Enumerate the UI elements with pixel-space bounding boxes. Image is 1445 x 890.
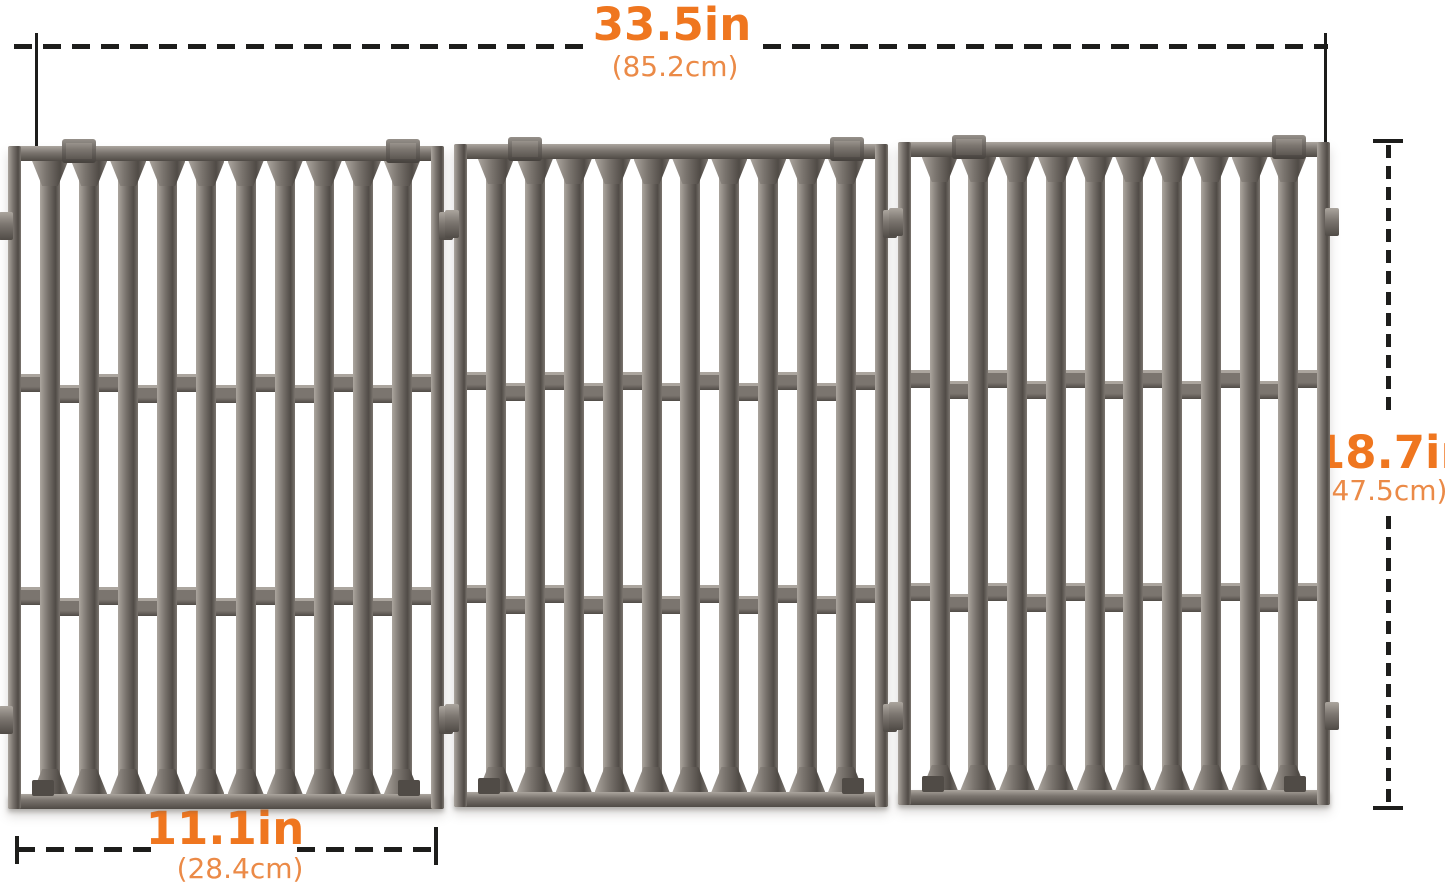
grate-bar-cap-top bbox=[478, 159, 514, 184]
panel-width-tick-right bbox=[434, 827, 438, 865]
grate-bar-cap-bottom bbox=[110, 769, 146, 794]
panel-width-inches-label: 11.1in bbox=[125, 806, 325, 851]
grate-bar-cap-top bbox=[1154, 157, 1190, 182]
grate-bar bbox=[1046, 157, 1066, 790]
bottom-lug bbox=[922, 776, 944, 792]
top-lug bbox=[952, 135, 986, 159]
grate-bar bbox=[1201, 157, 1221, 790]
frame-rail-bottom bbox=[8, 794, 444, 809]
grate-bar-cap-bottom bbox=[71, 769, 107, 794]
grate-bar-cap-bottom bbox=[960, 765, 996, 790]
grate-panel bbox=[898, 142, 1330, 805]
grate-bar-cap-bottom bbox=[672, 767, 708, 792]
grate-bar-cap-bottom bbox=[750, 767, 786, 792]
side-tab-right bbox=[1325, 208, 1339, 236]
grate-bar bbox=[680, 159, 700, 792]
grate-bar bbox=[758, 159, 778, 792]
grate-bar-cap-bottom bbox=[228, 769, 264, 794]
top-lug bbox=[386, 139, 420, 163]
side-tab-left bbox=[889, 208, 903, 236]
grate-bar-cap-bottom bbox=[267, 769, 303, 794]
grate-bar-cap-top bbox=[634, 159, 670, 184]
grate-bar-cap-top bbox=[306, 161, 342, 186]
side-tab-left bbox=[889, 702, 903, 730]
grate-bar-cap-bottom bbox=[517, 767, 553, 792]
grate-bar-cap-top bbox=[1038, 157, 1074, 182]
width-cm-label: (85.2cm) bbox=[575, 53, 775, 81]
depth-dimension-line bbox=[1386, 516, 1391, 806]
grate-bar bbox=[314, 161, 334, 794]
grate-bar bbox=[1162, 157, 1182, 790]
grate-bar bbox=[40, 161, 60, 794]
grate-bar-cap-top bbox=[1115, 157, 1151, 182]
grate-bar-cap-bottom bbox=[634, 767, 670, 792]
grate-bar-cap-bottom bbox=[789, 767, 825, 792]
grate-bar-cap-bottom bbox=[595, 767, 631, 792]
grate-bar bbox=[642, 159, 662, 792]
depth-cm-label: (47.5cm) bbox=[1314, 477, 1445, 505]
grate-bar bbox=[1278, 157, 1298, 790]
grate-bar-cap-top bbox=[110, 161, 146, 186]
bottom-lug bbox=[1284, 776, 1306, 792]
grate-bar-cap-top bbox=[32, 161, 68, 186]
grate-bar-cap-bottom bbox=[306, 769, 342, 794]
top-lug bbox=[1272, 135, 1306, 159]
side-tab-right bbox=[1325, 702, 1339, 730]
grate-bar bbox=[392, 161, 412, 794]
grate-bar-cap-top bbox=[999, 157, 1035, 182]
frame-rail-bottom bbox=[898, 790, 1330, 805]
grate-bar-cap-bottom bbox=[556, 767, 592, 792]
grate-bar-cap-bottom bbox=[1077, 765, 1113, 790]
depth-tick-bottom bbox=[1373, 806, 1403, 810]
grate-bar-cap-bottom bbox=[1038, 765, 1074, 790]
side-tab-left bbox=[445, 210, 459, 238]
grate-bar-cap-bottom bbox=[1193, 765, 1229, 790]
grate-bar-cap-top bbox=[556, 159, 592, 184]
grate-bar bbox=[353, 161, 373, 794]
top-lug bbox=[508, 137, 542, 161]
grate-bar-cap-top bbox=[595, 159, 631, 184]
grate-bar bbox=[79, 161, 99, 794]
width-dimension-line bbox=[14, 44, 587, 49]
grate-bar-cap-top bbox=[828, 159, 864, 184]
grate-bar-cap-top bbox=[711, 159, 747, 184]
grate-bar-cap-top bbox=[1270, 157, 1306, 182]
panel-width-cm-label: (28.4cm) bbox=[140, 855, 340, 883]
diagram-canvas: 33.5in (85.2cm) 18.7in (47.5cm) 11.1in (… bbox=[0, 0, 1445, 890]
grate-bar bbox=[797, 159, 817, 792]
grate-bar-cap-top bbox=[750, 159, 786, 184]
grate-bar bbox=[1085, 157, 1105, 790]
grate-bar-cap-top bbox=[345, 161, 381, 186]
grate-bar bbox=[930, 157, 950, 790]
grate-bar-cap-top bbox=[228, 161, 264, 186]
grate-bar bbox=[836, 159, 856, 792]
grate-bar bbox=[1123, 157, 1143, 790]
grate-bar-cap-top bbox=[517, 159, 553, 184]
grate-panel bbox=[8, 146, 444, 809]
grate-bar bbox=[719, 159, 739, 792]
grate-bar bbox=[157, 161, 177, 794]
grate-bar-cap-top bbox=[922, 157, 958, 182]
extension-line-left bbox=[35, 33, 38, 147]
grate-bar-cap-top bbox=[188, 161, 224, 186]
grate-bar bbox=[968, 157, 988, 790]
grate-bar-cap-top bbox=[71, 161, 107, 186]
grate-bar bbox=[118, 161, 138, 794]
grate-bar-cap-bottom bbox=[711, 767, 747, 792]
bottom-lug bbox=[398, 780, 420, 796]
grate-bar-cap-bottom bbox=[345, 769, 381, 794]
grate-bar-cap-top bbox=[672, 159, 708, 184]
width-dimension-line bbox=[763, 44, 1328, 49]
bottom-lug bbox=[32, 780, 54, 796]
grate-bar bbox=[564, 159, 584, 792]
grate-bar-cap-bottom bbox=[1115, 765, 1151, 790]
grate-bar-cap-top bbox=[960, 157, 996, 182]
grate-bar-cap-bottom bbox=[1154, 765, 1190, 790]
grate-bar bbox=[236, 161, 256, 794]
grate-bar bbox=[1240, 157, 1260, 790]
bottom-lug bbox=[842, 778, 864, 794]
grate-bar-cap-bottom bbox=[149, 769, 185, 794]
grate-bar-cap-top bbox=[1193, 157, 1229, 182]
depth-dimension-line bbox=[1386, 145, 1391, 415]
top-lug bbox=[830, 137, 864, 161]
grate-bar bbox=[1007, 157, 1027, 790]
grate-bar-cap-top bbox=[267, 161, 303, 186]
side-tab-left bbox=[0, 212, 13, 240]
extension-line-right bbox=[1324, 33, 1327, 147]
side-tab-left bbox=[0, 706, 13, 734]
grate-bar-cap-bottom bbox=[999, 765, 1035, 790]
grate-panel bbox=[454, 144, 888, 807]
top-lug bbox=[62, 139, 96, 163]
grate-bar bbox=[486, 159, 506, 792]
grate-bar-cap-bottom bbox=[1232, 765, 1268, 790]
bottom-lug bbox=[478, 778, 500, 794]
depth-inches-label: 18.7in bbox=[1314, 430, 1445, 475]
grate-bar-cap-bottom bbox=[188, 769, 224, 794]
grate-bar bbox=[603, 159, 623, 792]
depth-tick-top bbox=[1373, 139, 1403, 143]
grate-bar bbox=[275, 161, 295, 794]
side-tab-left bbox=[445, 704, 459, 732]
width-inches-label: 33.5in bbox=[572, 2, 772, 47]
grate-bar-cap-top bbox=[789, 159, 825, 184]
grate-bar-cap-top bbox=[384, 161, 420, 186]
grate-bar bbox=[196, 161, 216, 794]
grate-bar bbox=[525, 159, 545, 792]
frame-rail-bottom bbox=[454, 792, 888, 807]
grate-bar-cap-top bbox=[1232, 157, 1268, 182]
grate-bar-cap-top bbox=[1077, 157, 1113, 182]
grate-bar-cap-top bbox=[149, 161, 185, 186]
